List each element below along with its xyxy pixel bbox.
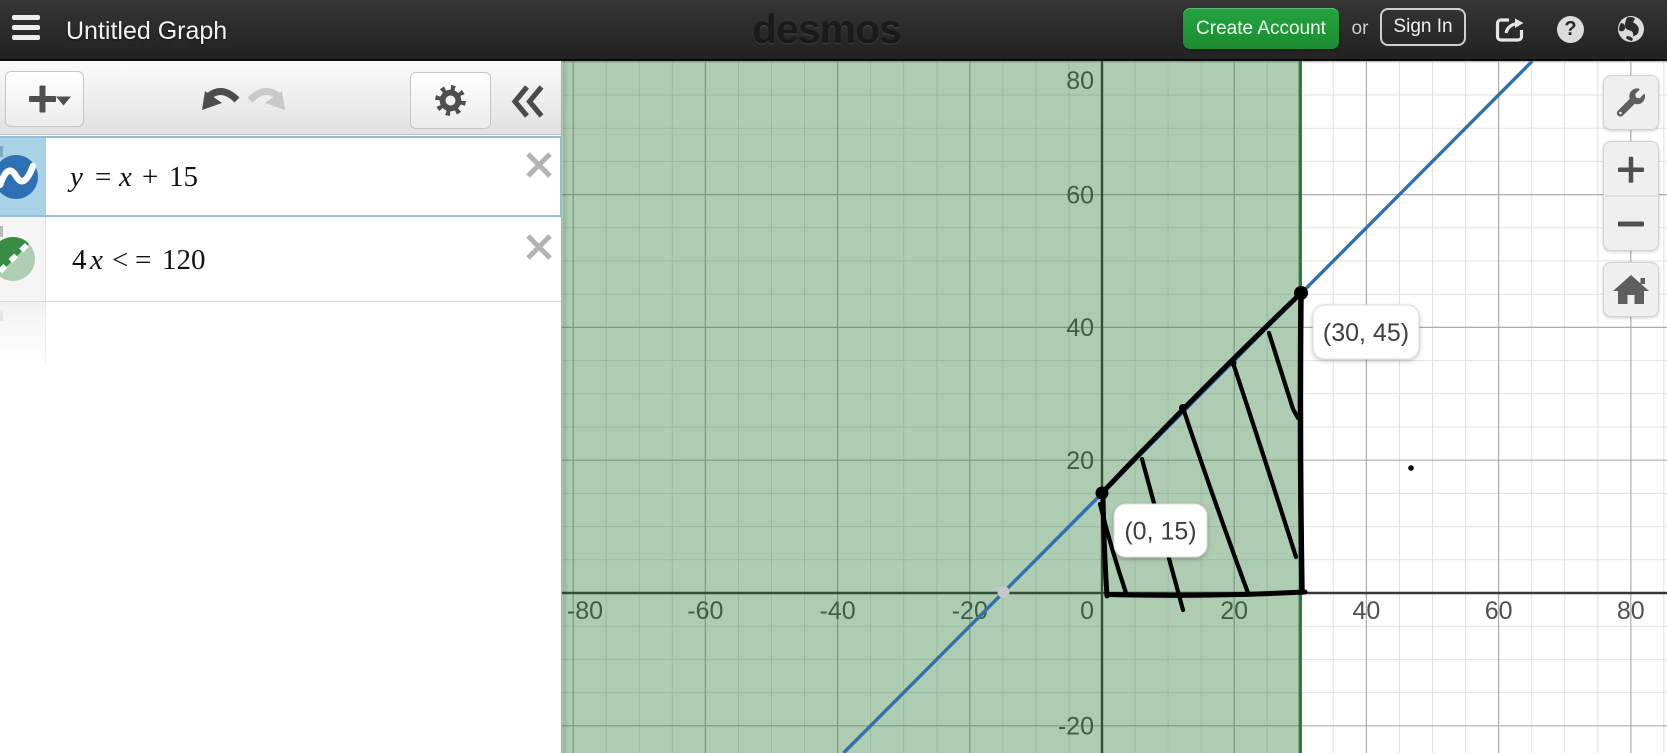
svg-text:40: 40 — [1352, 597, 1380, 625]
svg-text:(0, 15): (0, 15) — [1124, 518, 1196, 546]
svg-text:60: 60 — [1485, 597, 1513, 625]
svg-text:(30, 45): (30, 45) — [1323, 319, 1409, 347]
svg-text:80: 80 — [1617, 597, 1645, 625]
